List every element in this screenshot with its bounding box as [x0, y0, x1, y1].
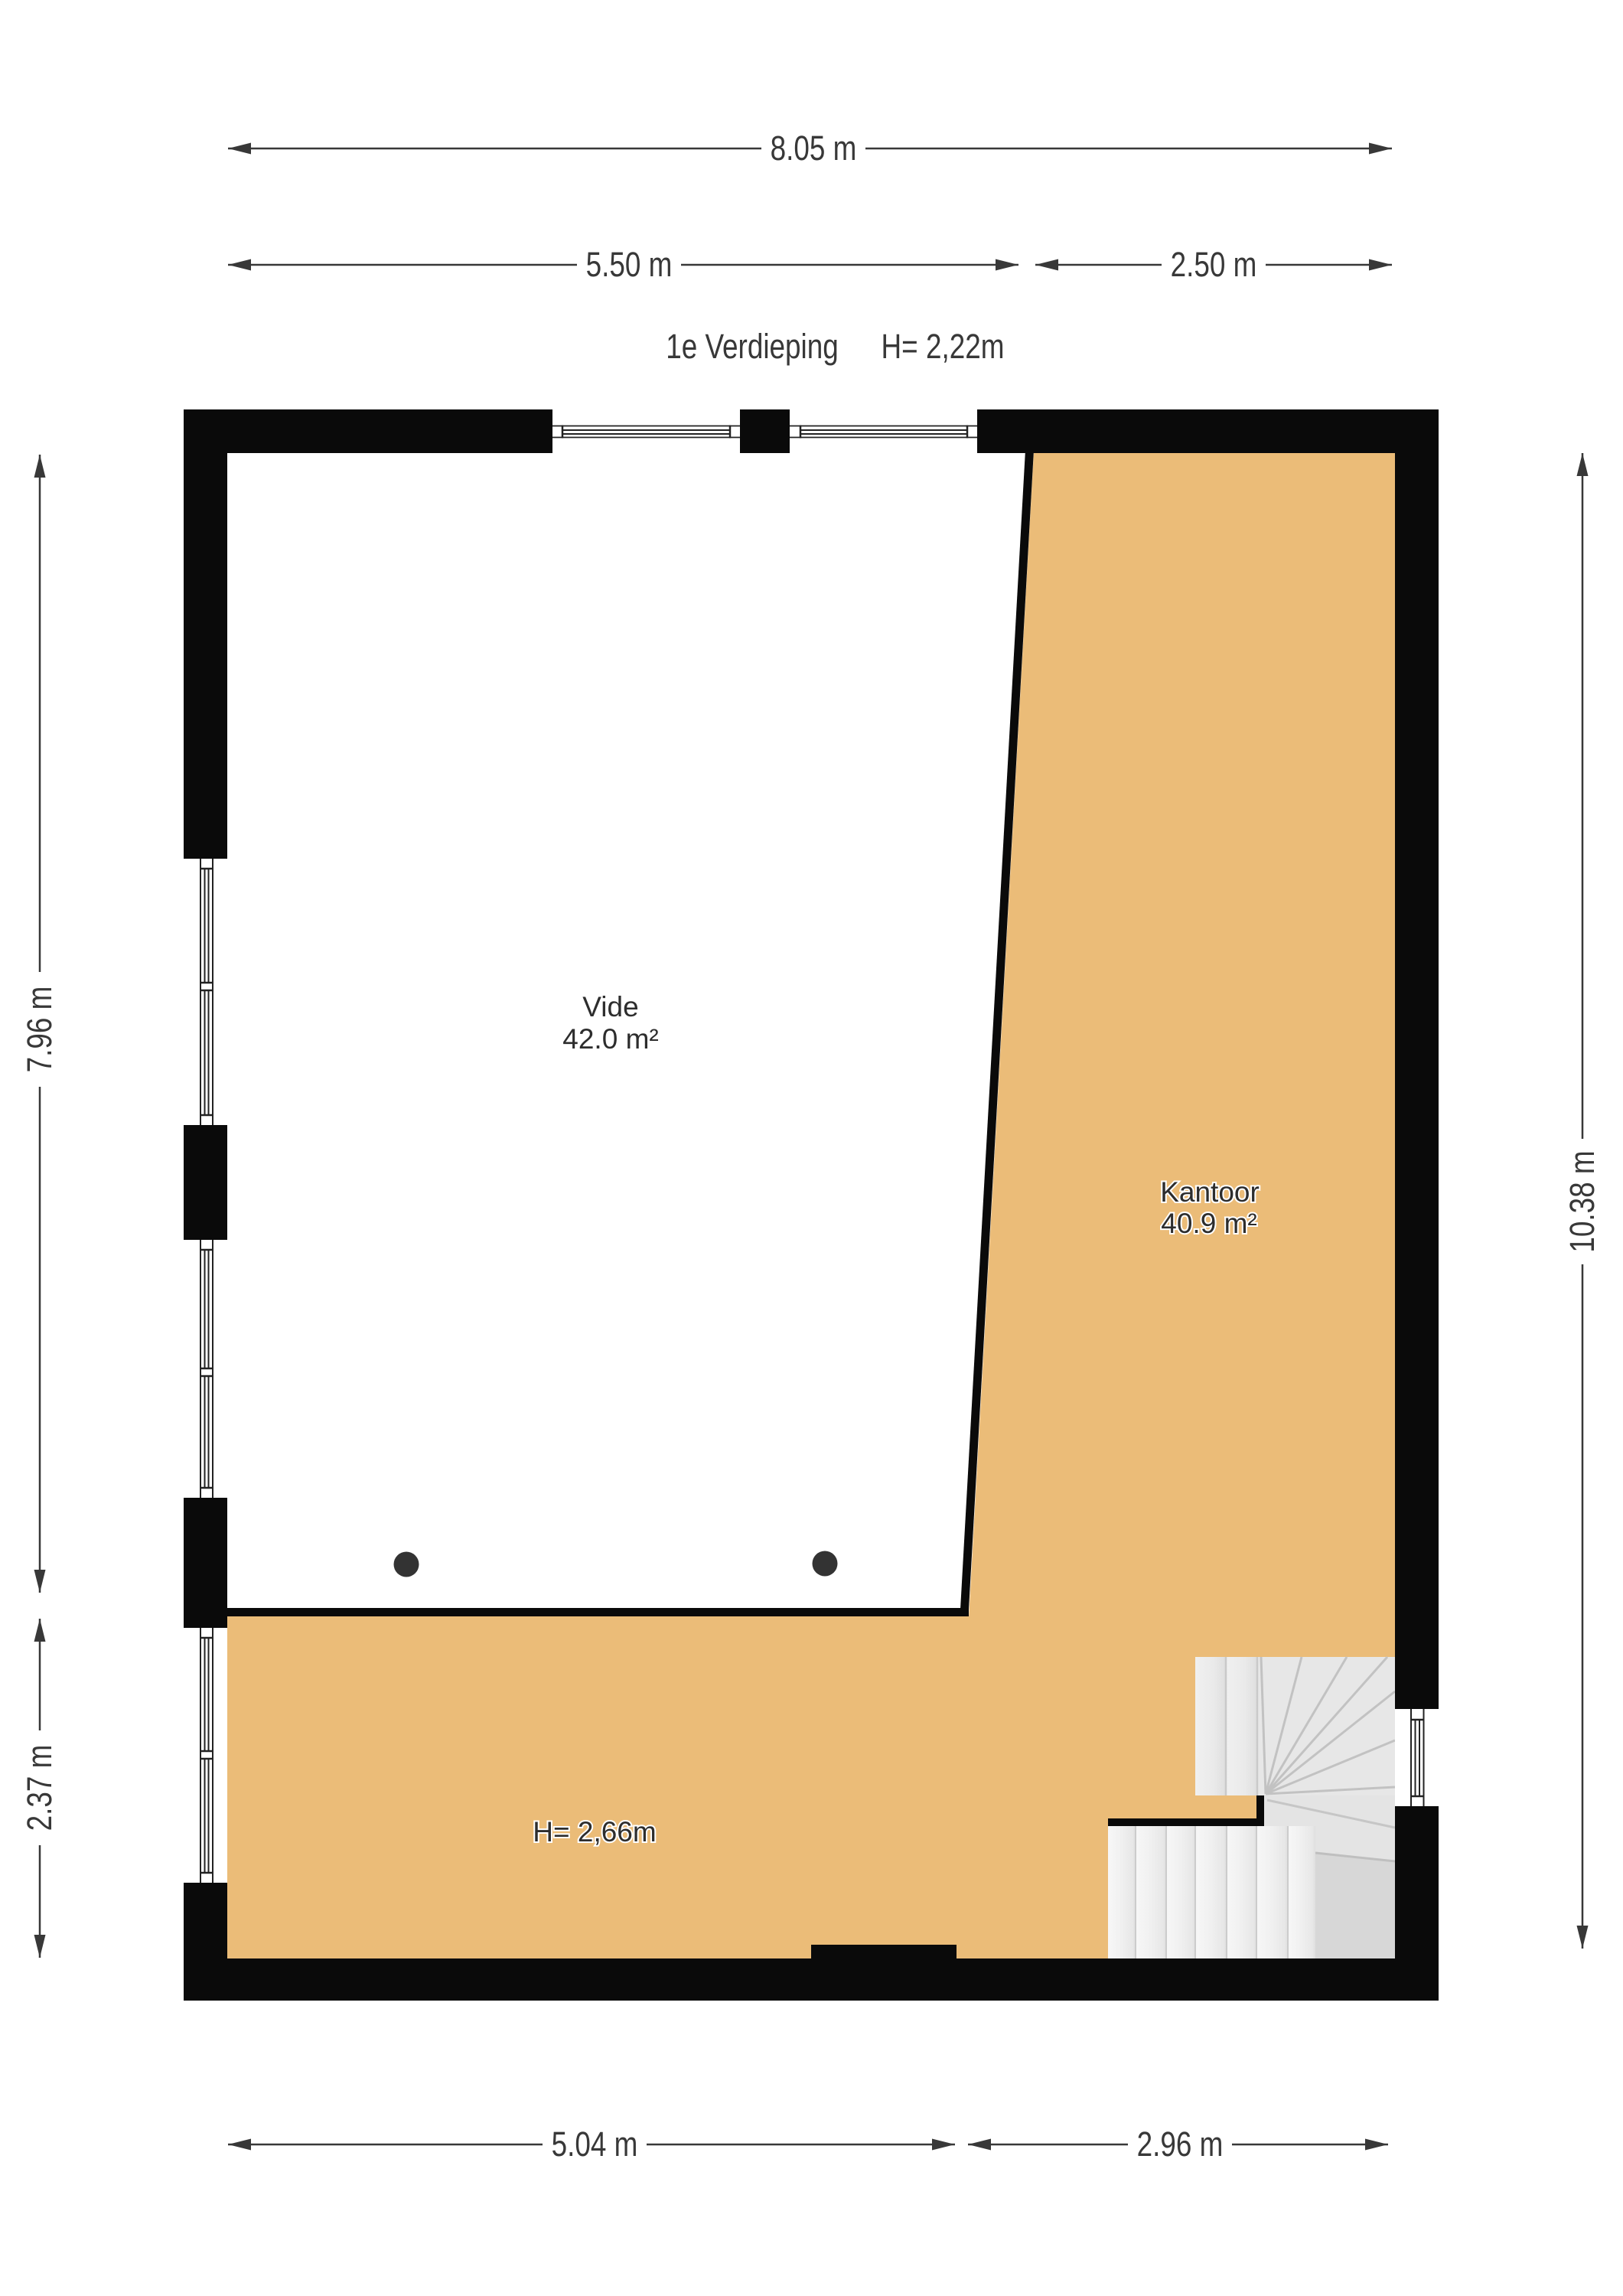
svg-text:2.37 m: 2.37 m: [21, 1745, 59, 1831]
svg-text:5.04 m: 5.04 m: [552, 2125, 638, 2164]
svg-text:2.50 m: 2.50 m: [1171, 246, 1257, 284]
svg-text:8.05 m: 8.05 m: [771, 129, 857, 168]
svg-text:40.9 m²: 40.9 m²: [1161, 1208, 1256, 1239]
svg-text:Kantoor: Kantoor: [1160, 1176, 1260, 1208]
svg-text:42.0 m²: 42.0 m²: [562, 1023, 658, 1055]
svg-text:10.38 m: 10.38 m: [1563, 1150, 1602, 1252]
svg-text:H= 2,66m: H= 2,66m: [533, 1816, 656, 1848]
svg-text:Vide: Vide: [582, 991, 638, 1022]
svg-text:2.96 m: 2.96 m: [1137, 2125, 1224, 2164]
svg-text:1e Verdieping: 1e Verdieping: [666, 328, 839, 366]
svg-text:H= 2,22m: H= 2,22m: [882, 328, 1005, 366]
svg-text:7.96 m: 7.96 m: [21, 987, 59, 1073]
svg-text:5.50 m: 5.50 m: [586, 246, 673, 284]
